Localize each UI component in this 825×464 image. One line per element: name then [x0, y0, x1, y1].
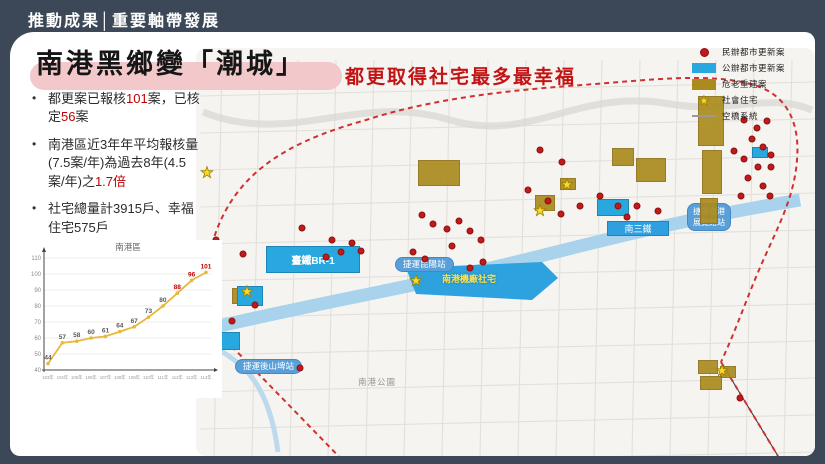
svg-text:106年: 106年: [85, 374, 97, 381]
star-icon: ★: [698, 94, 710, 107]
svg-text:110: 110: [31, 256, 41, 262]
svg-text:70: 70: [34, 320, 41, 326]
svg-text:67: 67: [131, 318, 139, 325]
svg-text:40: 40: [34, 368, 41, 374]
svg-text:90: 90: [34, 288, 41, 294]
trend-chart-svg: 40506070809010011044103年57104年58105年6010…: [18, 240, 222, 393]
svg-text:73: 73: [145, 308, 153, 315]
svg-text:61: 61: [102, 327, 110, 334]
page-subtitle: 都更取得社宅最多最幸福: [345, 62, 576, 89]
depot-site-polygon: [406, 262, 558, 300]
legend-label: 公辦都市更新案: [722, 62, 785, 74]
legend-row: 民辦都市更新案: [686, 44, 812, 60]
bullet-text: 都更案已報核101案，已核定56案: [48, 90, 200, 127]
bullet-marker: •: [32, 90, 48, 127]
legend-label: 社會住宅: [722, 94, 758, 106]
svg-text:112年: 112年: [172, 374, 184, 381]
svg-text:58: 58: [73, 332, 81, 339]
slide-card: 臺鐵BR-1 南三鐵 南港機廠社宅 南港公園 捷運昆陽站 捷運後山埤站 捷運南港…: [10, 32, 815, 456]
svg-text:88: 88: [174, 284, 182, 291]
svg-text:111年: 111年: [157, 374, 169, 381]
svg-text:105年: 105年: [71, 374, 83, 381]
legend-label: 空橋系統: [722, 110, 758, 122]
svg-text:114年: 114年: [200, 374, 212, 381]
svg-text:110年: 110年: [143, 374, 155, 381]
red-dot-icon: [700, 48, 709, 57]
svg-text:103年: 103年: [42, 374, 54, 381]
trend-chart: 40506070809010011044103年57104年58105年6010…: [18, 240, 222, 398]
svg-text:100: 100: [31, 272, 42, 278]
svg-text:50: 50: [34, 352, 41, 358]
svg-text:104年: 104年: [57, 374, 69, 381]
svg-text:109年: 109年: [128, 374, 140, 381]
bullet-item: •南港區近3年年平均報核量(7.5案/年)為過去8年(4.5案/年)之1.7倍: [32, 136, 200, 191]
svg-text:64: 64: [116, 323, 124, 330]
svg-text:60: 60: [34, 336, 41, 342]
legend-row: 公辦都市更新案: [686, 60, 812, 76]
legend-row: ★ 社會住宅: [686, 92, 812, 108]
bullet-item: •都更案已報核101案，已核定56案: [32, 90, 200, 127]
skybridge-line-icon: [692, 115, 716, 117]
svg-text:60: 60: [87, 329, 95, 336]
svg-text:108年: 108年: [114, 374, 126, 381]
bullet-text: 社宅總量計3915戶、幸福住宅575戶: [48, 200, 200, 237]
page-title: 南港黑鄉變「潮城」: [36, 42, 306, 81]
blue-rect-icon: [692, 63, 716, 73]
svg-text:80: 80: [34, 304, 41, 310]
svg-text:南港區: 南港區: [115, 242, 141, 252]
legend-row: 空橋系統: [686, 108, 812, 124]
bullet-text: 南港區近3年年平均報核量(7.5案/年)為過去8年(4.5案/年)之1.7倍: [48, 136, 200, 191]
svg-text:107年: 107年: [100, 374, 112, 381]
svg-text:44: 44: [44, 355, 52, 362]
svg-text:96: 96: [188, 271, 196, 278]
svg-text:101: 101: [201, 263, 212, 270]
svg-text:57: 57: [59, 334, 67, 341]
svg-text:80: 80: [159, 297, 167, 304]
title-block: 南港黑鄉變「潮城」: [36, 42, 306, 81]
legend-row: 危老重建案: [686, 76, 812, 92]
slide-header: 推動成果│重要軸帶發展: [28, 7, 220, 31]
olive-rect-icon: [692, 79, 716, 90]
bullet-item: •社宅總量計3915戶、幸福住宅575戶: [32, 200, 200, 237]
legend-label: 危老重建案: [722, 78, 767, 90]
svg-text:113年: 113年: [186, 374, 198, 381]
bullet-marker: •: [32, 200, 48, 237]
bullet-marker: •: [32, 136, 48, 191]
bullet-list: •都更案已報核101案，已核定56案•南港區近3年年平均報核量(7.5案/年)為…: [32, 90, 200, 246]
map-legend: 民辦都市更新案 公辦都市更新案 危老重建案 ★ 社會住宅 空橋系統: [686, 44, 812, 124]
legend-label: 民辦都市更新案: [722, 46, 785, 58]
